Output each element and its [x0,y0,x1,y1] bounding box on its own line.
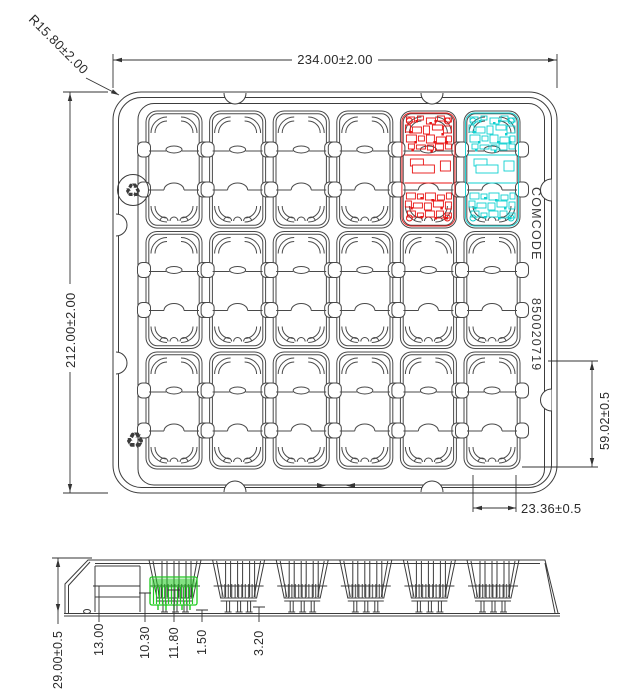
side-cluster [467,560,519,612]
dim-pocket-pitch: 23.36±0.5 [473,475,581,516]
dim-rib-width: 3.20 [252,607,266,656]
engineering-drawing: ♻ ♻ COMCODE 850020719 234.00±2.00 212.00… [0,0,621,694]
dim-pocket-depth-b-label: 11.80 [167,627,181,659]
edge-notch [421,93,443,104]
green-part [150,577,197,610]
edge-notch [541,389,552,411]
comcode-label: COMCODE [529,187,543,261]
pocket [201,111,274,228]
edge-notch [116,214,127,236]
edge-notch [224,93,246,104]
pocket [328,352,401,469]
dim-clearance-label: 1.50 [195,629,209,655]
dim-pocket-pitch-label: 23.36±0.5 [521,501,581,516]
dim-corner-radius: R15.80±2.00 [26,12,119,95]
side-view: 29.00±0.5 13.00 10.30 11.80 1.50 3.20 [51,558,560,689]
recycle-icon: ♻ [125,428,145,453]
page: ♻ ♻ COMCODE 850020719 234.00±2.00 212.00… [0,0,621,694]
pocket [392,232,465,349]
dim-overall-height: 212.00±2.00 [63,92,108,493]
dim-overall-width: 234.00±2.00 [113,52,557,88]
edge-notch [116,352,127,374]
pocket [138,232,211,349]
dim-corner-radius-label: R15.80±2.00 [26,12,92,78]
dim-pocket-depth-a-label: 10.30 [138,626,152,659]
pocket [265,111,338,228]
dim-ledge-height-label: 13.00 [92,623,106,656]
dim-side-overall-height-label: 29.00±0.5 [51,631,65,689]
side-cluster [213,560,265,612]
pocket [328,111,401,228]
recycle-icon: ♻ [124,181,141,202]
top-view: ♻ ♻ COMCODE 850020719 234.00±2.00 212.00… [26,12,612,516]
pocket [201,352,274,469]
dim-clearance: 1.50 [195,610,209,655]
side-cluster [276,560,328,612]
dim-rib-width-label: 3.20 [252,630,266,656]
pocket [138,352,211,469]
side-cluster [403,560,455,612]
pocket [265,352,338,469]
dim-overall-height-label: 212.00±2.00 [63,293,78,369]
pocket-grid [138,111,529,469]
pocket [456,232,529,349]
side-cluster [340,560,392,612]
pocket [456,352,529,469]
comcode-value: 850020719 [529,298,543,371]
dim-pocket-height-label: 59.02±0.5 [598,392,612,450]
edge-notch [224,481,246,492]
side-clusters [149,560,519,612]
pocket [265,232,338,349]
pocket [328,232,401,349]
dim-overall-width-label: 234.00±2.00 [297,52,373,67]
dim-pocket-height: 59.02±0.5 [522,361,612,467]
pocket [138,111,211,228]
edge-notch [421,481,443,492]
pocket [392,352,465,469]
pocket [201,232,274,349]
